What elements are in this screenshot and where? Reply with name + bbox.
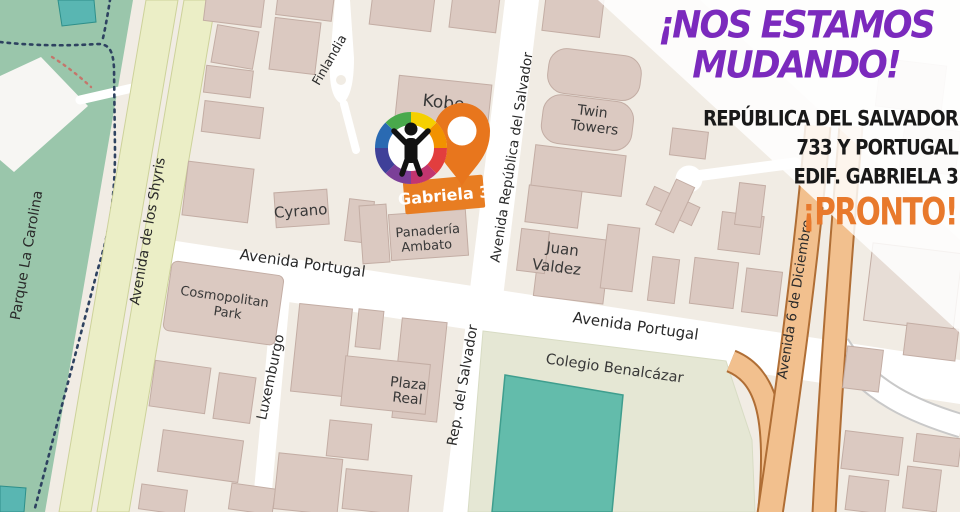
building xyxy=(647,257,679,304)
park-pool-south xyxy=(0,486,26,512)
building xyxy=(211,25,259,70)
headline-line2: MUDANDO! xyxy=(638,46,954,86)
brand-logo-icon xyxy=(375,112,447,184)
pin-hole xyxy=(448,117,477,146)
building xyxy=(903,323,959,361)
building xyxy=(525,185,582,228)
flyer-canvas: Parque La Carolina Avenida de los Shyris… xyxy=(0,0,960,512)
headline-line1: ¡NOS ESTAMOS xyxy=(638,6,954,46)
building xyxy=(149,360,211,413)
moving-headline: ¡NOS ESTAMOS MUDANDO! xyxy=(638,6,954,86)
building xyxy=(201,101,263,139)
building xyxy=(359,204,390,264)
building xyxy=(213,373,256,424)
building xyxy=(269,17,321,74)
building xyxy=(203,65,253,98)
building xyxy=(913,433,960,466)
building xyxy=(182,161,254,223)
building xyxy=(843,346,884,392)
address-line3: EDIF. GABRIELA 3 xyxy=(645,162,959,191)
label-cyrano: Cyrano xyxy=(273,200,328,222)
building xyxy=(689,257,738,308)
building xyxy=(355,309,384,349)
coming-soon-text: ¡PRONTO! xyxy=(653,189,957,234)
building xyxy=(326,420,372,460)
address-line1: REPÚBLICA DEL SALVADOR xyxy=(645,104,959,133)
building xyxy=(342,469,412,512)
label-plaza-real-2: Real xyxy=(392,389,424,408)
building xyxy=(449,0,500,33)
building xyxy=(845,476,889,512)
address-line2: 733 Y PORTUGAL xyxy=(645,133,959,162)
park-pool xyxy=(58,0,96,26)
building xyxy=(903,466,942,512)
building xyxy=(273,453,343,512)
street-finlandia-loop-island xyxy=(336,75,346,85)
new-address: REPÚBLICA DEL SALVADOR 733 Y PORTUGAL ED… xyxy=(645,104,959,191)
sports-field xyxy=(492,375,623,512)
building xyxy=(841,431,903,476)
building xyxy=(741,268,782,316)
building xyxy=(542,0,604,37)
